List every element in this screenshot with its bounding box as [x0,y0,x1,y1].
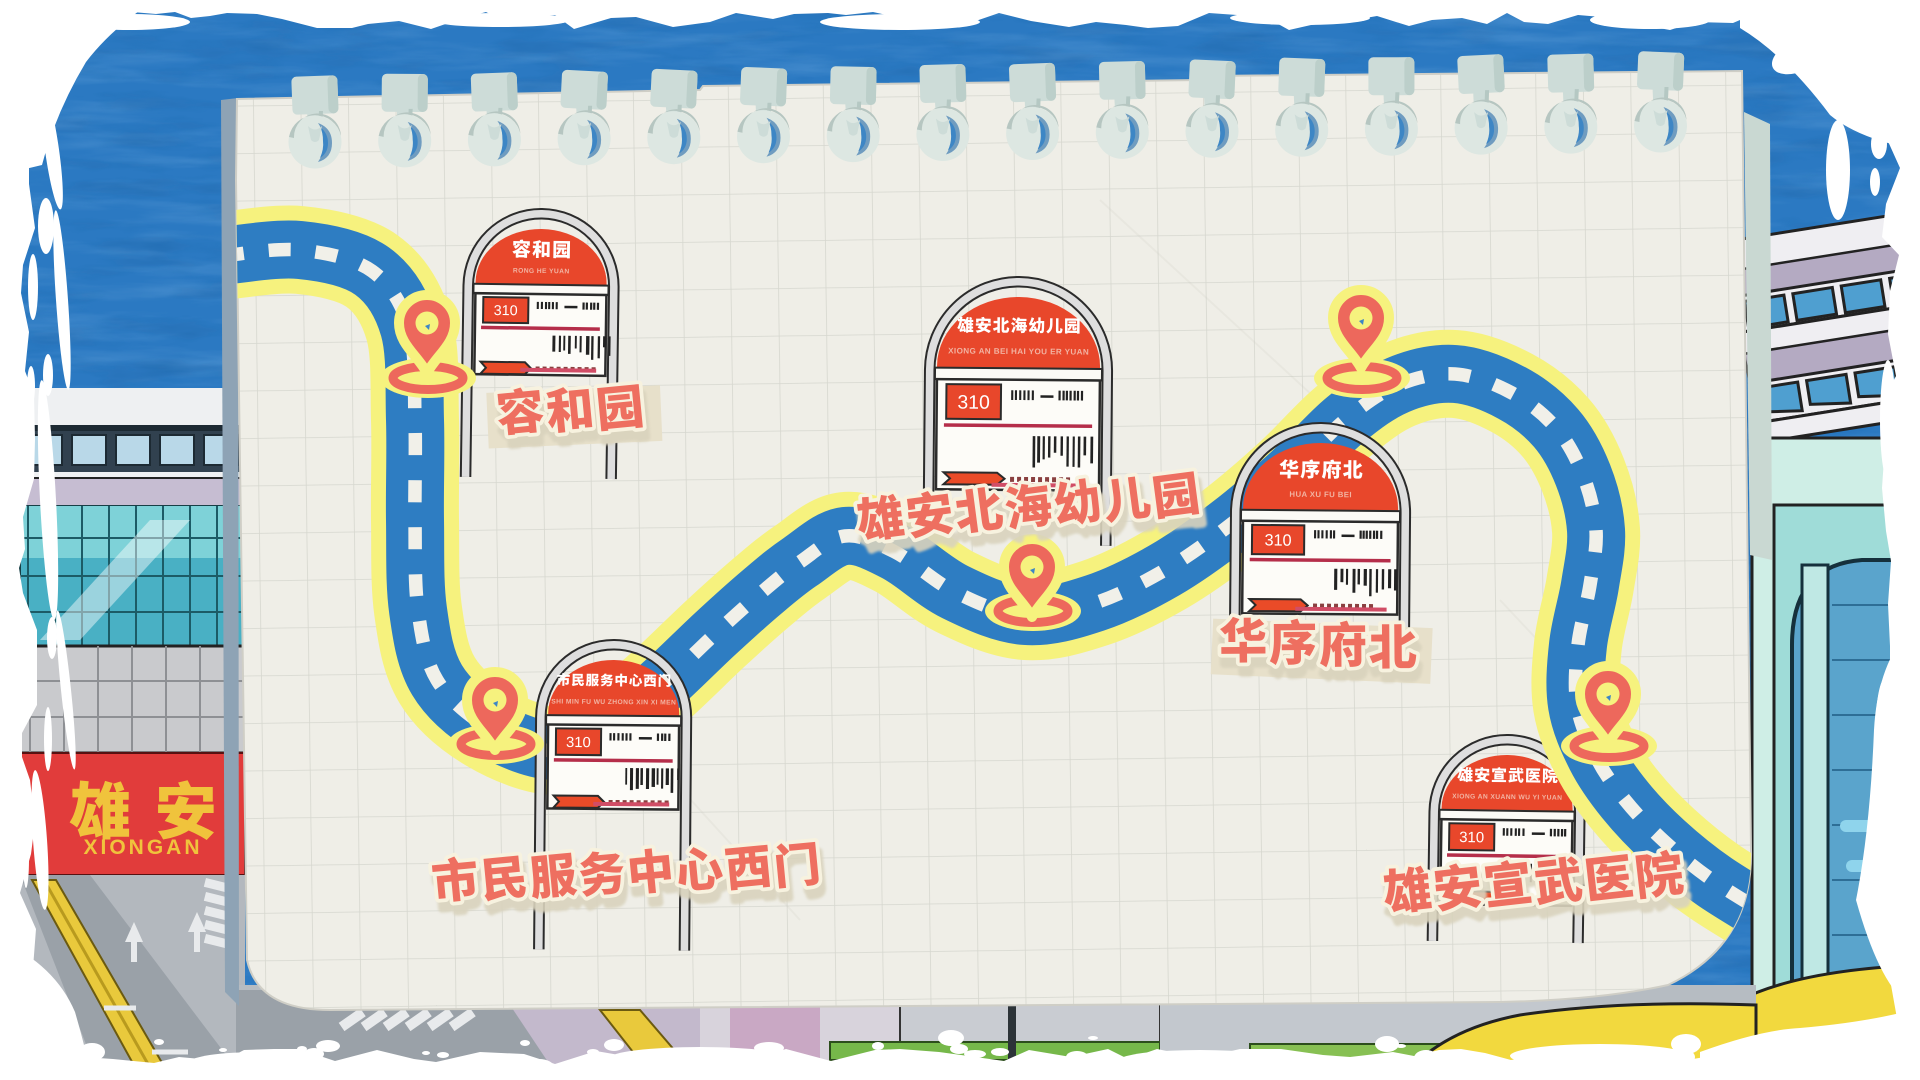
svg-text:XIONGAN: XIONGAN [83,836,202,859]
svg-text:310: 310 [494,303,518,319]
svg-text:XIONG AN BEI HAI YOU ER YUAN: XIONG AN BEI HAI YOU ER YUAN [948,346,1089,356]
svg-text:310: 310 [957,391,990,413]
svg-text:HUA XU FU BEI: HUA XU FU BEI [1289,490,1352,500]
svg-text:310: 310 [1459,829,1484,846]
svg-text:SHI MIN FU WU ZHONG XIN XI MEN: SHI MIN FU WU ZHONG XIN XI MEN [551,698,676,706]
svg-text:RONG HE YUAN: RONG HE YUAN [513,268,570,276]
svg-text:310: 310 [1264,531,1291,549]
svg-text:310: 310 [566,735,591,751]
